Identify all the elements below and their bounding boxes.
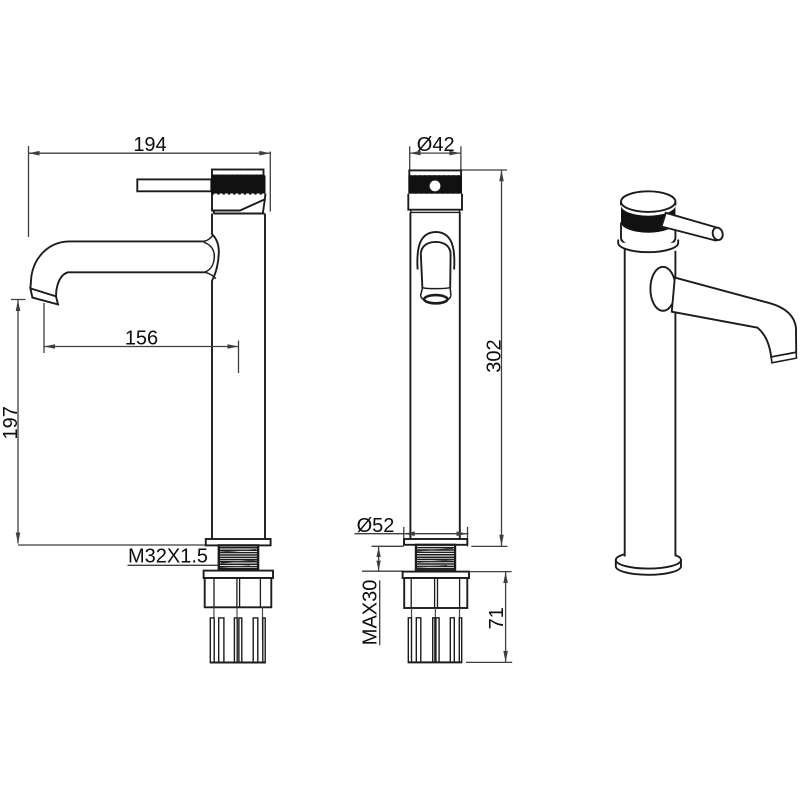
svg-text:302: 302 — [484, 339, 506, 372]
svg-text:197: 197 — [0, 406, 22, 439]
svg-text:Ø42: Ø42 — [417, 134, 455, 156]
svg-text:71: 71 — [486, 607, 508, 629]
svg-text:Ø52: Ø52 — [357, 515, 395, 537]
svg-text:MAX30: MAX30 — [359, 580, 381, 646]
svg-text:M32X1.5: M32X1.5 — [128, 546, 208, 568]
svg-text:156: 156 — [125, 328, 158, 350]
svg-text:194: 194 — [133, 134, 166, 156]
